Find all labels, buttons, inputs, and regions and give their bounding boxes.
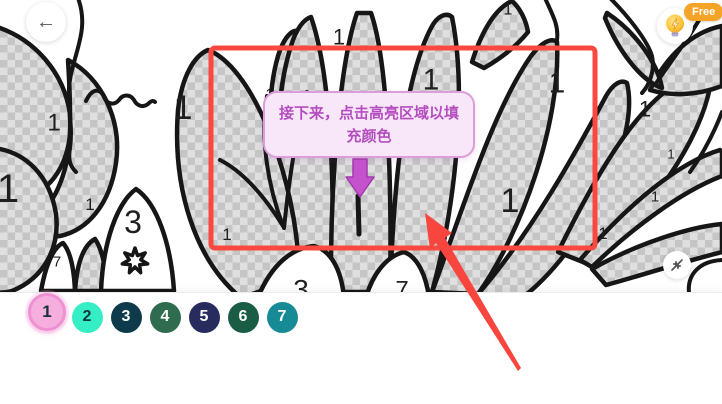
back-button[interactable]: ← — [26, 2, 66, 42]
palette-bar: 1234567 — [0, 292, 722, 404]
region-number[interactable]: 1 — [0, 167, 19, 211]
region-number[interactable]: 1 — [501, 182, 520, 220]
region-number[interactable]: 1 — [504, 2, 513, 19]
region-number[interactable]: 1 — [598, 224, 607, 243]
collapse-arrows-icon — [663, 251, 691, 279]
palette-color-2[interactable]: 2 — [72, 302, 103, 333]
collapse-button[interactable] — [663, 251, 691, 279]
free-badge[interactable]: Free — [684, 3, 722, 21]
region-number[interactable]: 1 — [85, 195, 94, 214]
region-number[interactable]: 1 — [222, 225, 231, 244]
palette-color-3[interactable]: 3 — [111, 302, 142, 333]
palette-color-5[interactable]: 5 — [189, 302, 220, 333]
region-number[interactable]: 1 — [651, 188, 659, 205]
left-arrow-icon: ← — [36, 11, 56, 34]
palette-color-1-selected[interactable]: 1 — [28, 293, 66, 331]
region-number[interactable]: 1 — [667, 147, 674, 162]
tutorial-tooltip: 接下来，点击高亮区域以填 充颜色 — [263, 91, 475, 158]
region-number[interactable]: 1 — [549, 67, 566, 100]
tooltip-text-line1: 接下来，点击高亮区域以填 — [273, 102, 465, 125]
palette-color-6[interactable]: 6 — [228, 302, 259, 333]
palette-color-4[interactable]: 4 — [150, 302, 181, 333]
palette-color-7[interactable]: 7 — [267, 302, 298, 333]
region-number[interactable]: 1 — [639, 97, 651, 122]
tooltip-text-line2: 充颜色 — [273, 125, 465, 148]
region-number[interactable]: 3 — [124, 204, 142, 240]
region-number[interactable]: 7 — [53, 253, 61, 270]
region-number[interactable]: 1 — [47, 109, 60, 136]
color-palette: 1234567 — [0, 293, 722, 404]
region-number[interactable]: 1 — [174, 89, 193, 127]
